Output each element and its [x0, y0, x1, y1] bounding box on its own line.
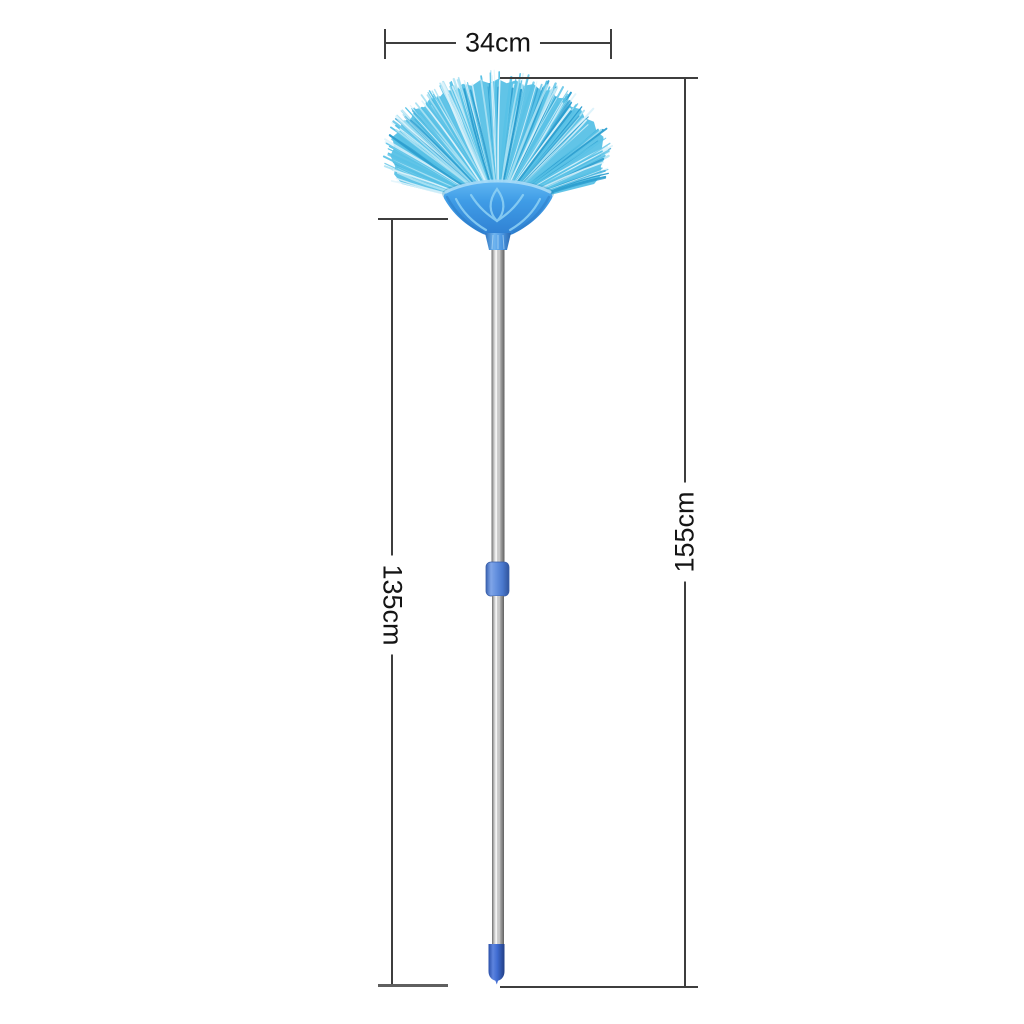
handle-grip-collar — [486, 562, 509, 596]
broom-pole-upper — [492, 248, 505, 564]
broom-pole-lower — [492, 596, 504, 946]
total-length-tick-top — [500, 77, 698, 79]
pole-length-tick-bottom — [378, 984, 448, 987]
pole-length-tick-top — [378, 218, 448, 220]
broom-illustration — [0, 0, 1024, 1024]
broom-head — [444, 181, 553, 250]
width-dimension-tick-left — [384, 29, 386, 59]
handle-tip — [489, 944, 505, 985]
width-dimension-label: 34cm — [456, 27, 540, 58]
total-length-tick-bottom — [500, 986, 698, 988]
width-dimension-tick-right — [610, 29, 612, 59]
pole-length-dimension-label: 135cm — [376, 555, 407, 654]
total-length-dimension-label: 155cm — [669, 482, 700, 581]
product-dimension-figure: 34cm 155cm 135cm — [0, 0, 1024, 1024]
